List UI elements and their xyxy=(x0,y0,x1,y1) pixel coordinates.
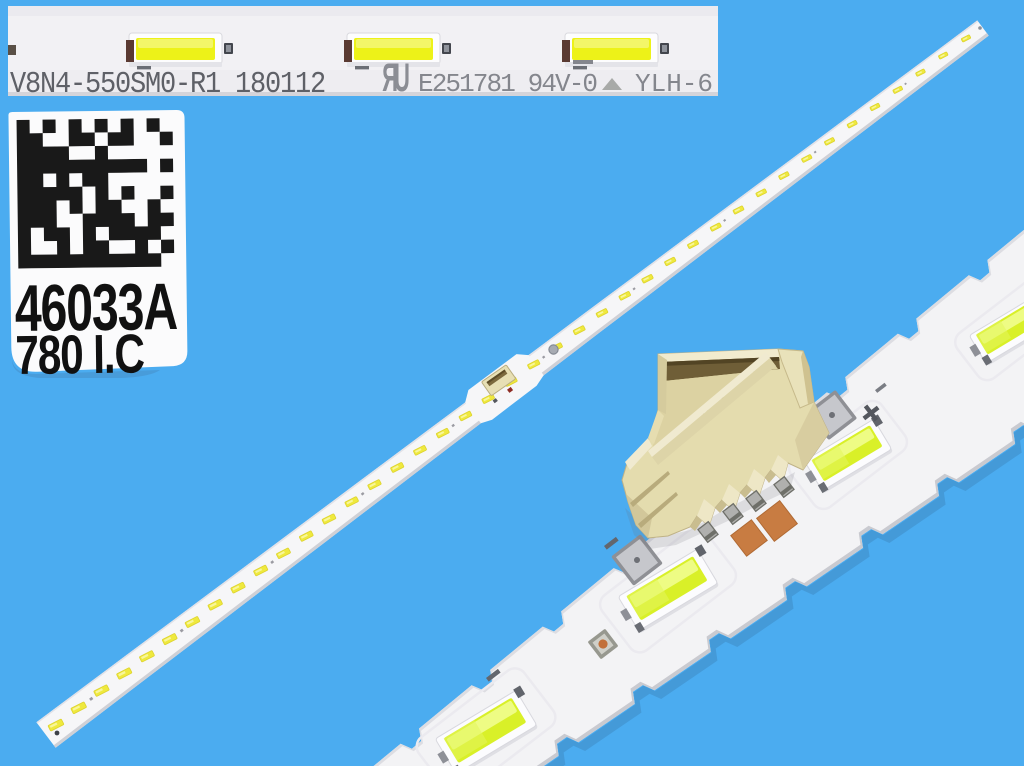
svg-text:780 I.C: 780 I.C xyxy=(15,324,145,386)
svg-text:U: U xyxy=(394,55,410,100)
svg-text:V8N4-550SM0-R1 180112: V8N4-550SM0-R1 180112 xyxy=(10,67,325,102)
svg-text:E251781 94V-0: E251781 94V-0 xyxy=(418,69,596,99)
svg-text:YLH-6: YLH-6 xyxy=(635,69,713,99)
